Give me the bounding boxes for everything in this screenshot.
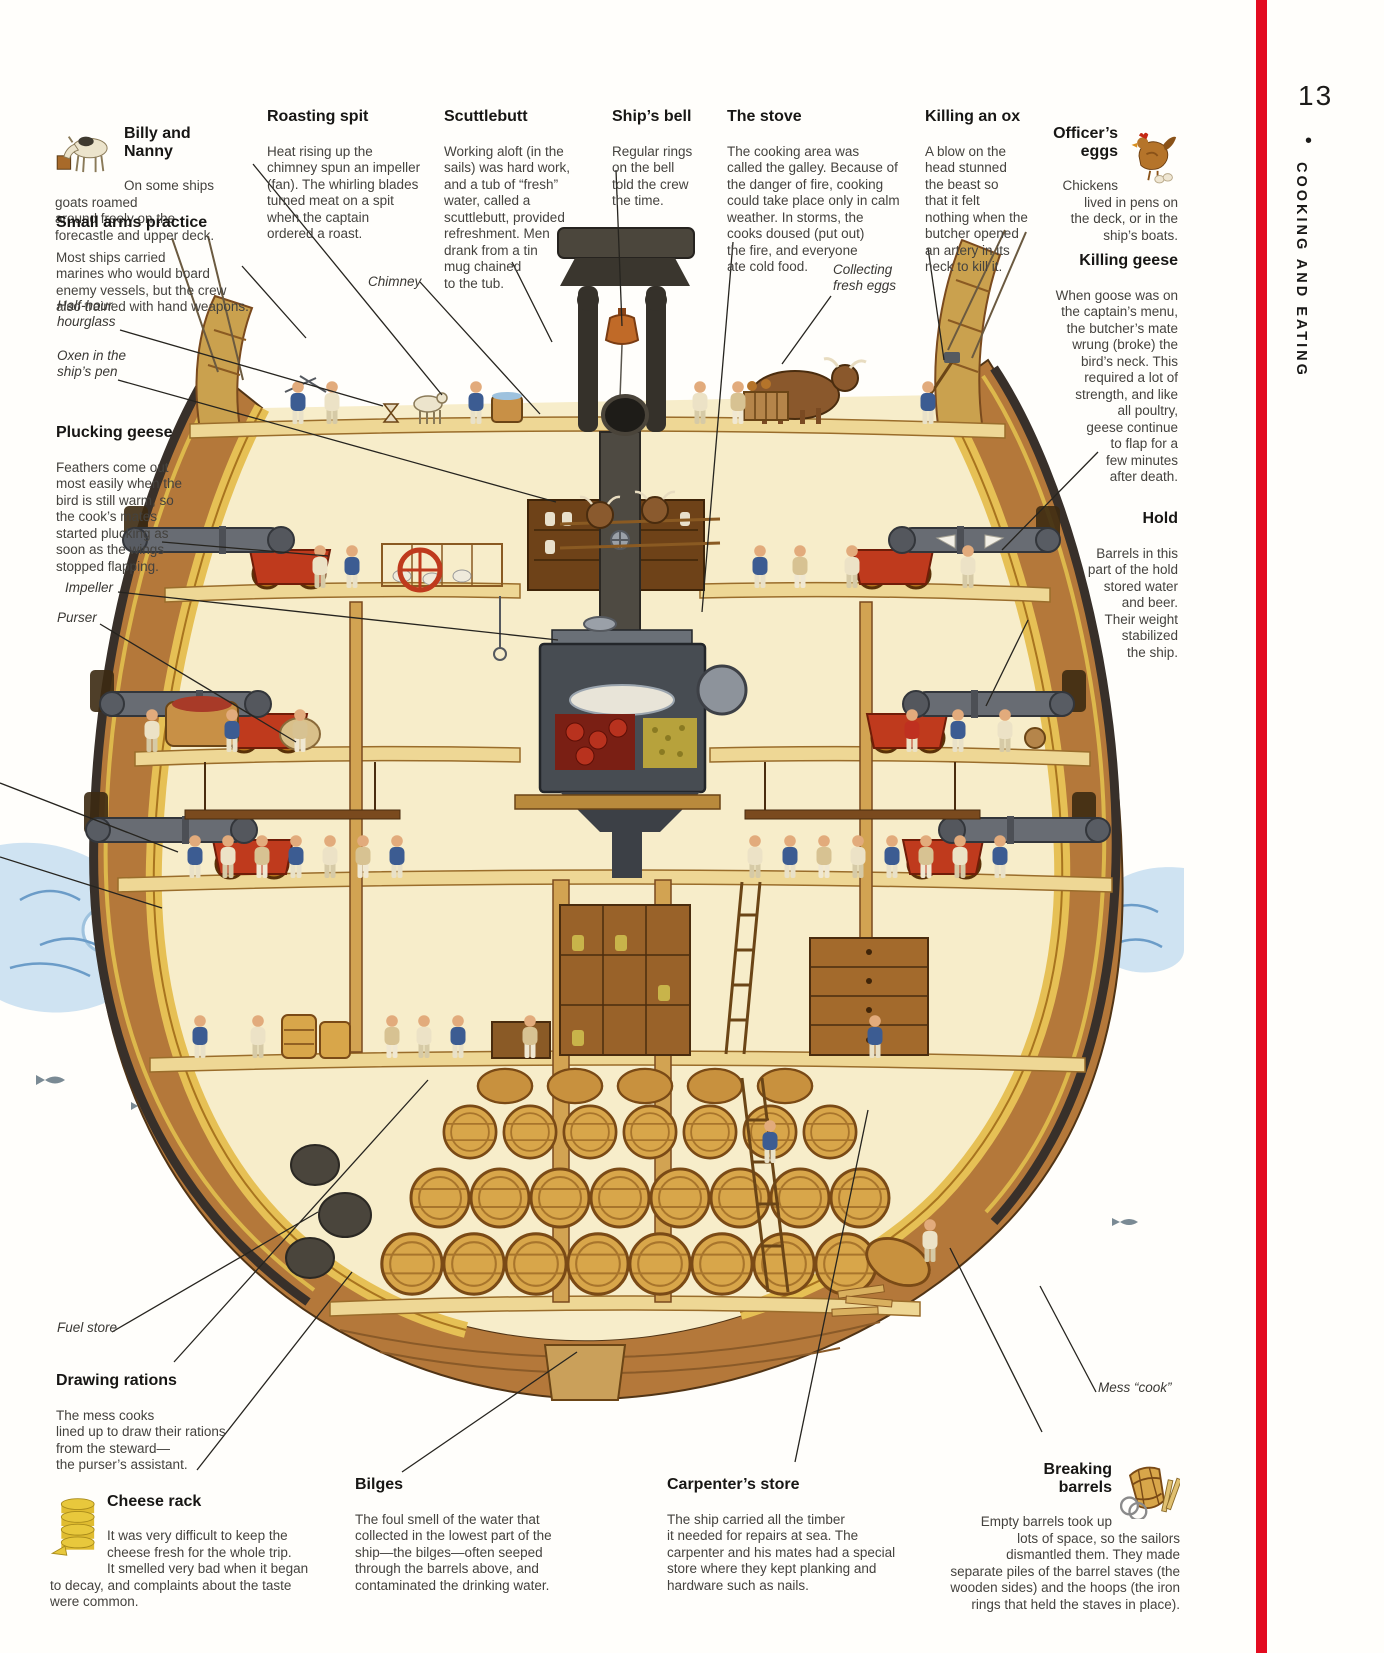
annotation-body: Barrels in this part of the hold stored …	[1030, 546, 1178, 661]
annotation-body: The foul smell of the water that collect…	[355, 1512, 595, 1594]
annotation-cheese-rack: Cheese rack It was very difficult to kee…	[50, 1460, 325, 1627]
separator-dot: •	[1305, 130, 1312, 153]
annotation-body: When goose was on the captain’s menu, th…	[1006, 288, 1178, 486]
hen-icon	[1126, 110, 1178, 189]
annotation-title: Plucking geese	[56, 424, 198, 442]
annotation-carpenters-store: Carpenter’s store The ship carried all t…	[667, 1460, 922, 1611]
annotation-hold: Hold Barrels in this part of the hold st…	[1030, 494, 1178, 678]
keel	[545, 1345, 625, 1400]
label-mess-cook: Mess “cook”	[1098, 1380, 1172, 1396]
annotation-body: Heat rising up the chimney spun an impel…	[267, 144, 437, 243]
roasting-wheel	[400, 550, 440, 590]
annotation-title: Drawing rations	[56, 1372, 266, 1390]
label-oxen-pen: Oxen in the ship’s pen	[57, 348, 126, 380]
annotation-killing-geese: Killing geese When goose was on the capt…	[1006, 236, 1178, 502]
cheese-icon	[50, 1478, 100, 1561]
section-title: COOKING AND EATING	[1293, 162, 1309, 378]
annotation-body: The cooking area was called the galley. …	[727, 144, 932, 276]
label-half-hour-hourglass: Half-hour hourglass	[57, 298, 116, 330]
book-page: Billy and Nanny On some ships goats roam…	[0, 0, 1384, 1653]
annotation-body: Regular rings on the bell told the crew …	[612, 144, 707, 210]
goat-icon	[55, 110, 117, 179]
butcher-hammer	[944, 352, 960, 363]
annotation-body: Feathers come out most easily when the b…	[56, 460, 198, 575]
annotation-title: Roasting spit	[267, 108, 437, 126]
support-post	[350, 602, 362, 1052]
fish-icon	[1112, 1218, 1138, 1226]
annotation-body: Working aloft (in the sails) was hard wo…	[444, 144, 594, 292]
annotation-the-stove: The stove The cooking area was called th…	[727, 92, 932, 292]
barrel-icon	[1120, 1446, 1180, 1523]
annotation-bilges: Bilges The foul smell of the water that …	[355, 1460, 595, 1611]
annotation-body: Empty barrels took up lots of space, so …	[893, 1514, 1180, 1613]
annotation-title: Bilges	[355, 1476, 595, 1494]
annotation-ships-bell: Ship’s bell Regular rings on the bell to…	[612, 92, 707, 226]
annotation-roasting-spit: Roasting spit Heat rising up the chimney…	[267, 92, 437, 259]
label-collecting-eggs: Collecting fresh eggs	[833, 262, 896, 294]
label-fuel-store: Fuel store	[57, 1320, 117, 1336]
annotation-plucking-geese: Plucking geese Feathers come out most ea…	[56, 408, 198, 592]
annotation-title: The stove	[727, 108, 932, 126]
annotation-breaking-barrels: Breaking barrels Empty barrels took up l…	[893, 1428, 1180, 1630]
annotation-title: Hold	[1030, 510, 1178, 528]
annotation-title: Small arms practice	[56, 214, 268, 232]
annotation-title: Scuttlebutt	[444, 108, 594, 126]
annotation-scuttlebutt: Scuttlebutt Working aloft (in the sails)…	[444, 92, 594, 309]
label-chimney: Chimney	[368, 274, 421, 290]
annotation-title: Ship’s bell	[612, 108, 707, 126]
label-impeller: Impeller	[65, 580, 113, 596]
annotation-body: The ship carried all the timber it neede…	[667, 1512, 922, 1594]
label-purser: Purser	[57, 610, 97, 626]
page-number: 13	[1298, 80, 1333, 112]
accent-bar	[1256, 0, 1267, 1653]
annotation-title: Killing geese	[1006, 252, 1178, 270]
annotation-title: Carpenter’s store	[667, 1476, 922, 1494]
